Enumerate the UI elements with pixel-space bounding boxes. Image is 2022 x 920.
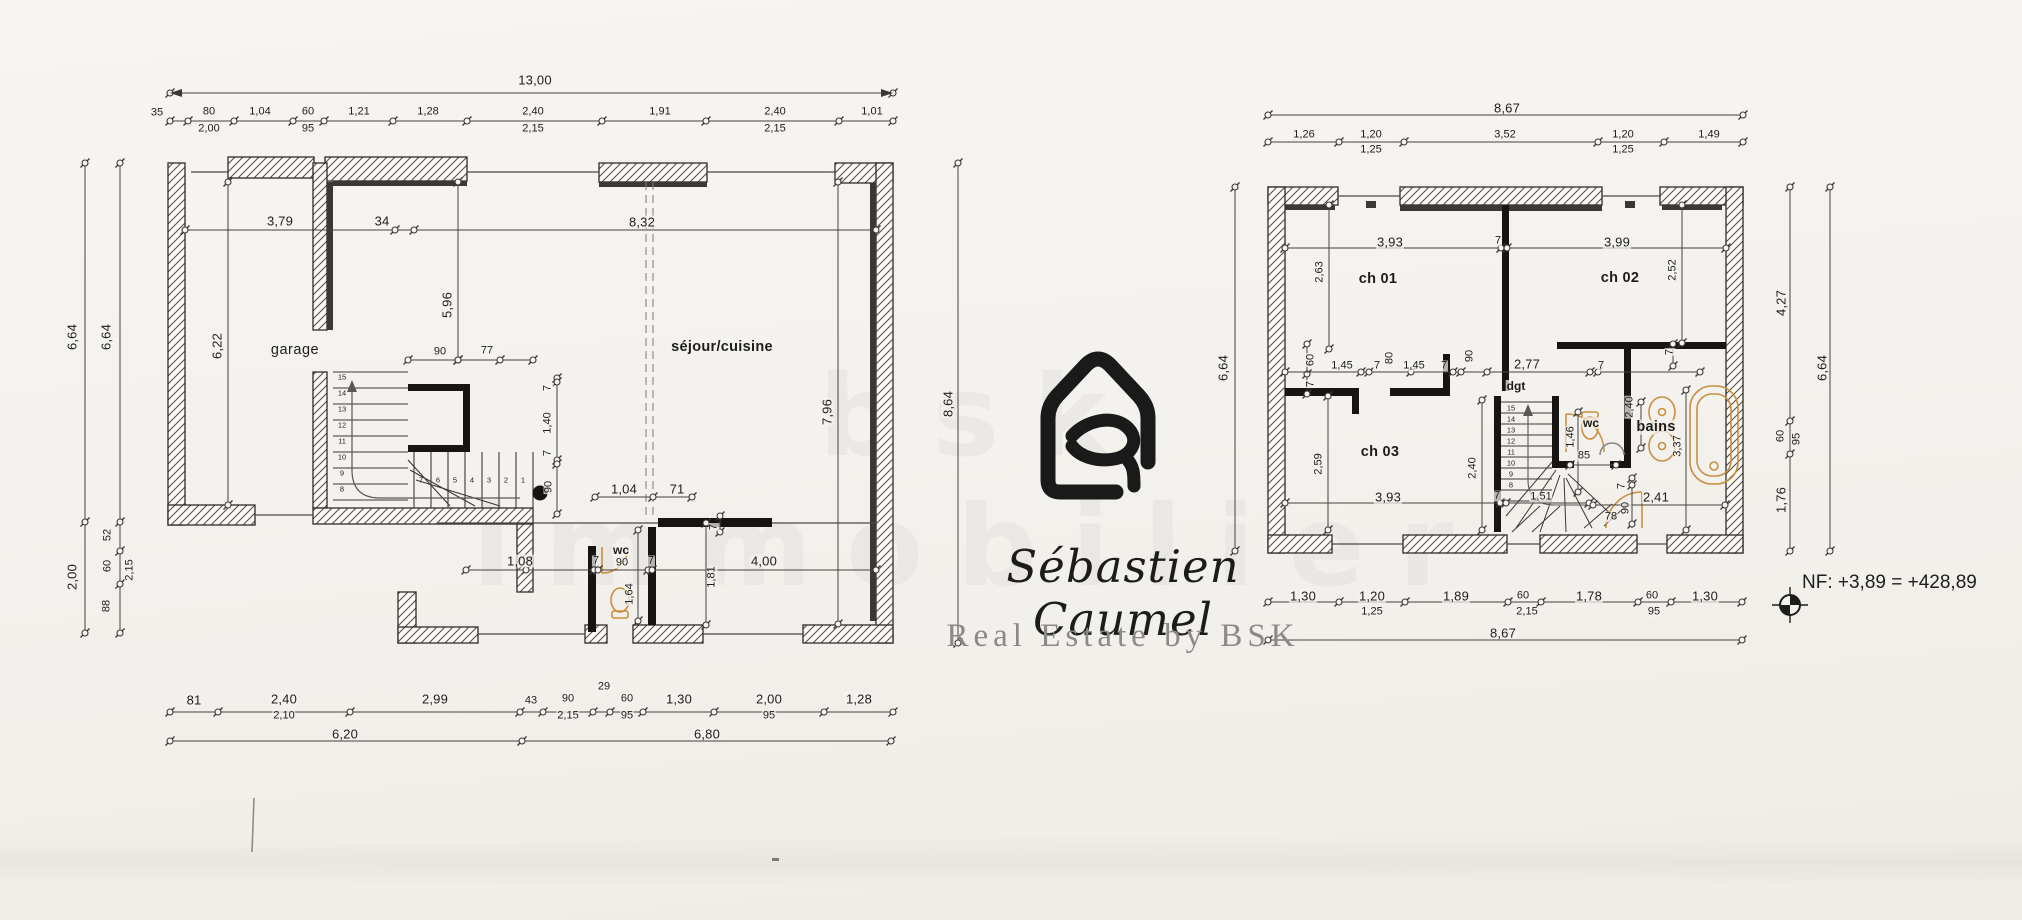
plan-label: 60 xyxy=(620,694,634,705)
plan-label: 90 xyxy=(615,558,629,569)
plan-label: 34 xyxy=(374,215,391,228)
plan-label: 4 xyxy=(469,476,475,484)
plan-label: 43 xyxy=(524,696,538,707)
plan-label: 11 xyxy=(337,437,347,445)
plan-label: 7 xyxy=(1597,361,1605,372)
plan-label: 1,51 xyxy=(1529,492,1552,503)
plan-label: 95 xyxy=(620,711,634,722)
plan-label: 1,49 xyxy=(1697,130,1720,141)
plan-label: ch 03 xyxy=(1360,445,1401,460)
plan-label: 7 xyxy=(1306,380,1317,388)
plan-label: 95 xyxy=(1792,432,1803,446)
plan-label: 3,99 xyxy=(1603,236,1631,249)
plan-label: 11 xyxy=(1506,448,1516,456)
plan-label: 60 xyxy=(1306,353,1317,367)
plan-label: 95 xyxy=(762,711,776,722)
plan-label: 5,96 xyxy=(441,291,454,319)
plan-label: 1,04 xyxy=(610,483,638,496)
plan-label: 2,40 xyxy=(1625,395,1636,418)
plan-label: 90 xyxy=(1465,349,1476,363)
plan-label: 8,67 xyxy=(1493,102,1521,115)
plan-label: 3,79 xyxy=(266,215,294,228)
plan-label: 1,28 xyxy=(845,693,873,706)
plan-label: 2,00 xyxy=(755,693,783,706)
plan-label: 6,64 xyxy=(100,323,113,351)
plan-label: 1,46 xyxy=(1566,425,1577,448)
plan-label: 3,37 xyxy=(1673,434,1684,457)
plan-label: garage xyxy=(270,343,320,358)
plan-label: 1,04 xyxy=(248,107,271,118)
plan-label: 80 xyxy=(202,107,216,118)
plan-label: 2,63 xyxy=(1315,260,1326,283)
plan-label: 2,15 xyxy=(125,558,136,581)
plan-label: 6,64 xyxy=(66,323,79,351)
plan-label: 2,15 xyxy=(1515,607,1538,618)
plan-label: 80 xyxy=(1385,351,1396,365)
plan-label: 1,81 xyxy=(707,565,718,588)
plan-label: 8 xyxy=(339,485,345,493)
plan-label: 1,25 xyxy=(1359,145,1382,156)
plan-label: 60 xyxy=(1516,591,1530,602)
plan-label: 1,30 xyxy=(665,693,693,706)
plan-label: 95 xyxy=(1647,607,1661,618)
plan-label: 2 xyxy=(503,476,509,484)
plan-label: 1,78 xyxy=(1575,590,1603,603)
plan-label: 6,64 xyxy=(1217,354,1230,382)
plan-label: ch 02 xyxy=(1600,271,1641,286)
paper-marks xyxy=(252,798,779,861)
plan-label: 60 xyxy=(1645,591,1659,602)
plan-label: wc xyxy=(612,544,630,556)
plan-label: 2,59 xyxy=(1314,452,1325,475)
plan-label: 2,40 xyxy=(521,107,544,118)
plan-label: 8,64 xyxy=(942,390,955,418)
plan-label: 4,27 xyxy=(1775,289,1788,317)
plan-label: 1,21 xyxy=(347,107,370,118)
plan-label: 10 xyxy=(337,453,347,461)
plan-label: 7 xyxy=(1617,482,1628,490)
plan-label: 1,25 xyxy=(1611,145,1634,156)
plan-label: 1,45 xyxy=(1330,361,1353,372)
plan-label: 2,00 xyxy=(66,563,79,591)
plan-label: wc xyxy=(1582,417,1600,429)
plan-label: 88 xyxy=(102,599,113,613)
plan-label: 29 xyxy=(597,682,611,693)
plan-label: 15 xyxy=(337,373,347,381)
plan-label: 7 xyxy=(418,476,424,484)
plan-label: 1 xyxy=(520,476,526,484)
plan-label: 13 xyxy=(337,405,347,413)
plan-label: 1,25 xyxy=(1360,607,1383,618)
plan-label: 3,93 xyxy=(1374,491,1402,504)
plan-label: 6 xyxy=(435,476,441,484)
plan-label: 7 xyxy=(1493,491,1501,502)
plan-label: 3,93 xyxy=(1376,236,1404,249)
left-plan-axis-lines xyxy=(646,182,653,518)
plan-label: 6,20 xyxy=(331,728,359,741)
plan-label: 3,52 xyxy=(1493,130,1516,141)
plan-label: 6,22 xyxy=(211,332,224,360)
plan-label: 71 xyxy=(669,483,686,496)
plan-label: bains xyxy=(1635,420,1676,435)
plan-label: 7 xyxy=(647,556,655,567)
plan-label: 13,00 xyxy=(517,74,553,87)
plan-label: 12 xyxy=(337,421,347,429)
plan-label: 2,40 xyxy=(1468,456,1479,479)
plan-label: 7 xyxy=(543,449,554,457)
plan-label: 90 xyxy=(1621,501,1632,515)
plan-label: 1,40 xyxy=(543,411,554,434)
plan-label: 1,30 xyxy=(1691,590,1719,603)
plan-label: 6,80 xyxy=(693,728,721,741)
plan-label: 3 xyxy=(486,476,492,484)
plan-label: 1,89 xyxy=(1442,590,1470,603)
plan-label: 90 xyxy=(544,480,555,494)
plan-label: 5 xyxy=(452,476,458,484)
plan-label: 1,20 xyxy=(1611,130,1634,141)
plan-label: dgt xyxy=(1506,380,1527,392)
plan-label: 15 xyxy=(1506,404,1516,412)
plan-label: 6,64 xyxy=(1816,354,1829,382)
plan-label: 8 xyxy=(1508,481,1514,489)
plan-label: 78 xyxy=(1604,512,1618,523)
plan-label: 14 xyxy=(1506,415,1516,423)
plan-label: 2,00 xyxy=(197,124,220,135)
plan-label: 60 xyxy=(1776,429,1787,443)
plan-label: 1,64 xyxy=(625,582,636,605)
plan-label: 85 xyxy=(1577,451,1591,462)
plan-label: 8,32 xyxy=(628,216,656,229)
plan-label: 12 xyxy=(1506,437,1516,445)
plan-label: 4,00 xyxy=(750,555,778,568)
plan-label: 2,10 xyxy=(272,711,295,722)
plan-label: 7 xyxy=(1440,361,1448,372)
plan-label: 95 xyxy=(301,124,315,135)
plan-label: 1,20 xyxy=(1358,590,1386,603)
plan-label: 14 xyxy=(337,389,347,397)
plan-label: 7 xyxy=(1373,361,1381,372)
plan-label: 90 xyxy=(433,347,447,358)
plan-label: 7 xyxy=(1494,236,1502,247)
plan-label: 1,26 xyxy=(1292,130,1315,141)
left-plan-stairs xyxy=(333,372,548,508)
plan-label: 90 xyxy=(561,694,575,705)
plan-label: 60 xyxy=(103,559,114,573)
plan-label: 2,15 xyxy=(556,711,579,722)
plan-label: 2,15 xyxy=(763,124,786,135)
plan-label: 10 xyxy=(1506,459,1516,467)
plan-label: 1,76 xyxy=(1775,486,1788,514)
plan-label: 77 xyxy=(480,346,494,357)
plan-label: 60 xyxy=(301,107,315,118)
plan-label: 7 xyxy=(543,384,554,392)
plan-label: 1,91 xyxy=(648,107,671,118)
plan-label: 2,41 xyxy=(1642,491,1670,504)
plan-label: 8,67 xyxy=(1489,627,1517,640)
level-note: NF: +3,89 = +428,89 xyxy=(1802,572,1977,594)
plan-label: 9 xyxy=(1508,470,1514,478)
plan-label: 1,01 xyxy=(860,107,883,118)
plan-label: 2,99 xyxy=(421,693,449,706)
plan-label: 2,52 xyxy=(1668,258,1679,281)
plan-label: 81 xyxy=(186,694,203,707)
plan-label: 7 xyxy=(709,523,720,531)
house-logo-icon xyxy=(1048,359,1148,492)
plan-label: 1,45 xyxy=(1402,361,1425,372)
plan-label: 35 xyxy=(150,108,164,119)
floor-plan-sheet: bsk immobilier xyxy=(0,0,2022,920)
plan-label: 2,40 xyxy=(270,693,298,706)
plan-label: 7,96 xyxy=(821,398,834,426)
plan-label: 2,40 xyxy=(763,107,786,118)
plan-label: 7 xyxy=(592,556,600,567)
plan-label: 13 xyxy=(1506,426,1516,434)
plan-label: 2,77 xyxy=(1513,358,1541,371)
logo-tagline: Real Estate by BSK xyxy=(908,618,1338,655)
plan-label: séjour/cuisine xyxy=(670,340,774,355)
plan-label: 1,08 xyxy=(506,555,534,568)
plan-label: 52 xyxy=(103,528,114,542)
plan-label: ch 01 xyxy=(1358,272,1399,287)
plan-label: 1,28 xyxy=(416,107,439,118)
plan-label: 1,20 xyxy=(1359,130,1382,141)
plan-label: 7 xyxy=(1665,348,1676,356)
plan-label: 2,15 xyxy=(521,124,544,135)
plan-label: 9 xyxy=(339,469,345,477)
